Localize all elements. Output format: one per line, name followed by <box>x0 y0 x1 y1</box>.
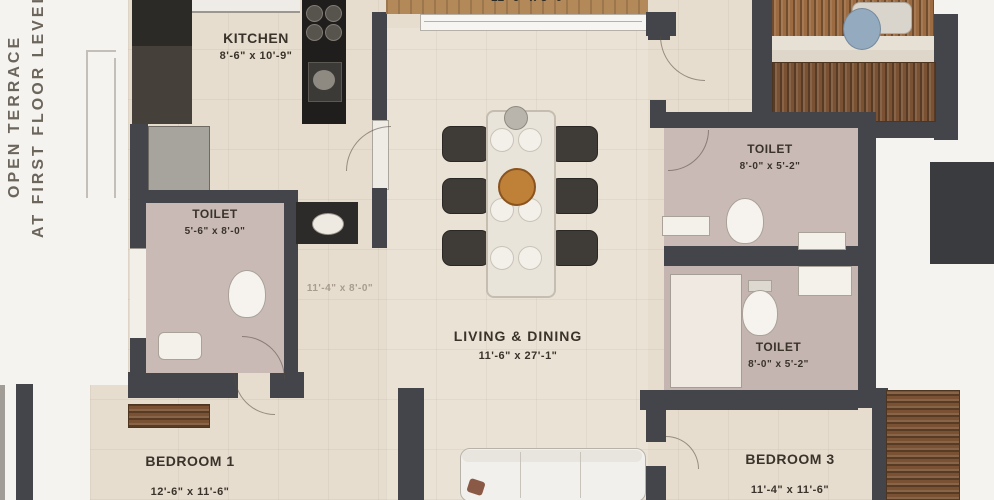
floor-plan: OPEN TERRACE AT FIRST FLOOR LEVEL KITCHE… <box>0 0 994 500</box>
wc-toilet <box>726 198 764 244</box>
dining-chair <box>550 126 598 162</box>
kitchen-window <box>192 0 300 13</box>
washbasin <box>798 266 852 296</box>
dresser <box>128 404 210 428</box>
dining-chair <box>550 230 598 266</box>
bed-bench <box>772 50 934 62</box>
sliding-door-track <box>424 21 642 22</box>
sofa-cushion-line <box>520 452 521 498</box>
plate <box>490 246 514 270</box>
toilet-top-right-label: TOILET <box>700 142 840 156</box>
center-bowl <box>498 168 536 206</box>
wall <box>372 12 387 120</box>
bedroom1-label: BEDROOM 1 <box>90 453 290 470</box>
stove-burner <box>325 5 342 22</box>
dining-chair <box>442 126 490 162</box>
wall <box>130 124 148 190</box>
window <box>130 248 146 340</box>
wall <box>930 162 994 264</box>
wall <box>128 372 238 398</box>
terrace-edge-line <box>0 385 5 500</box>
kitchen-label: KITCHEN <box>196 30 316 47</box>
terrace-railing-line <box>86 50 88 198</box>
terrace-railing-line <box>114 58 116 198</box>
bedroom3-label: BEDROOM 3 <box>700 451 880 468</box>
dining-chair <box>550 178 598 214</box>
wall <box>398 388 424 500</box>
wall <box>858 112 876 408</box>
right-terrace <box>958 390 994 500</box>
sofa-backrest <box>462 450 642 462</box>
wall <box>646 410 666 442</box>
bedroom1-floor <box>90 385 135 500</box>
wall <box>646 466 666 500</box>
bedroom3-dims: 11'-4" x 11'-6" <box>700 484 880 497</box>
terrace-note-line2: AT FIRST FLOOR LEVEL <box>30 0 48 238</box>
wall <box>664 112 860 128</box>
bedroom1-dims: 12'-6" x 11'-6" <box>90 486 290 499</box>
wall <box>752 0 772 118</box>
pillow <box>843 8 881 50</box>
living-dining-label: LIVING & DINING <box>408 328 628 345</box>
washbasin-sink <box>312 213 344 235</box>
balcony-dims: 11'-6" x 5'-0" <box>430 0 630 4</box>
plate <box>490 128 514 152</box>
toilet-left-dims: 5'-6" x 8'-0" <box>160 226 270 238</box>
terrace-note-line1: OPEN TERRACE <box>6 35 24 198</box>
wall <box>372 188 387 248</box>
toilet-top-right-dims: 8'-0" x 5'-2" <box>700 161 840 173</box>
toilet-mid-right-label: TOILET <box>706 340 851 354</box>
washbasin <box>662 216 710 236</box>
wc-toilet <box>742 290 778 336</box>
right-terrace <box>958 0 994 142</box>
plate <box>518 128 542 152</box>
teapot <box>504 106 528 130</box>
sliding-door <box>420 14 648 31</box>
kitchen-tall-unit <box>132 0 192 46</box>
dining-chair <box>442 230 490 266</box>
kitchen-sink-basin <box>313 70 335 90</box>
kitchen-counter <box>132 46 192 124</box>
passage-dims: 11'-4" x 8'-0" <box>290 283 390 295</box>
stove-burner <box>325 24 342 41</box>
wall <box>640 390 858 410</box>
fridge <box>148 126 210 192</box>
dining-chair <box>442 178 490 214</box>
stove-burner <box>306 5 323 22</box>
washbasin <box>158 332 202 360</box>
wall <box>130 190 146 248</box>
toilet-left-label: TOILET <box>160 207 270 221</box>
kitchen-dims: 8'-6" x 10'-9" <box>196 50 316 63</box>
plate <box>518 246 542 270</box>
wall <box>146 190 298 203</box>
wall <box>16 384 33 500</box>
wc-toilet <box>228 270 266 318</box>
toilet-mid-right-dims: 8'-0" x 5'-2" <box>706 359 851 371</box>
wardrobe <box>886 390 960 500</box>
washbasin <box>798 232 846 250</box>
sofa-cushion-line <box>580 452 581 498</box>
living-dining-dims: 11'-6" x 27'-1" <box>408 350 628 363</box>
terrace-railing-line <box>86 50 116 52</box>
